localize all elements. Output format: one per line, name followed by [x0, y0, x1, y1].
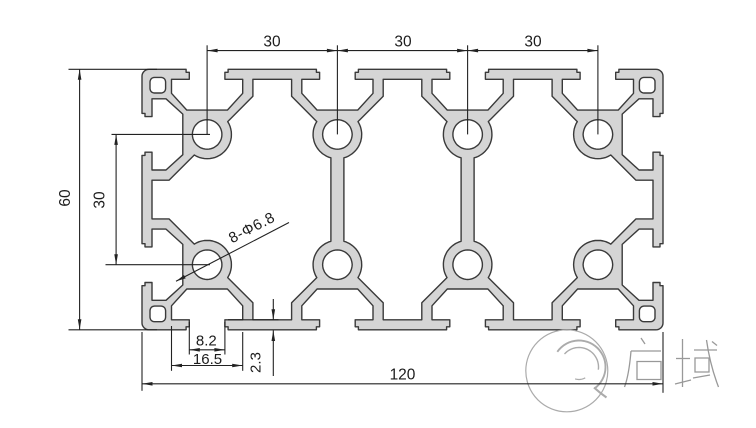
svg-text:30: 30	[92, 191, 109, 209]
svg-text:8.2: 8.2	[196, 333, 217, 350]
svg-text:30: 30	[524, 34, 542, 51]
svg-text:16.5: 16.5	[193, 351, 222, 368]
svg-text:120: 120	[390, 367, 416, 384]
svg-text:2.3: 2.3	[248, 352, 265, 373]
svg-text:30: 30	[263, 34, 281, 51]
svg-text:30: 30	[394, 34, 412, 51]
svg-text:60: 60	[57, 189, 74, 207]
